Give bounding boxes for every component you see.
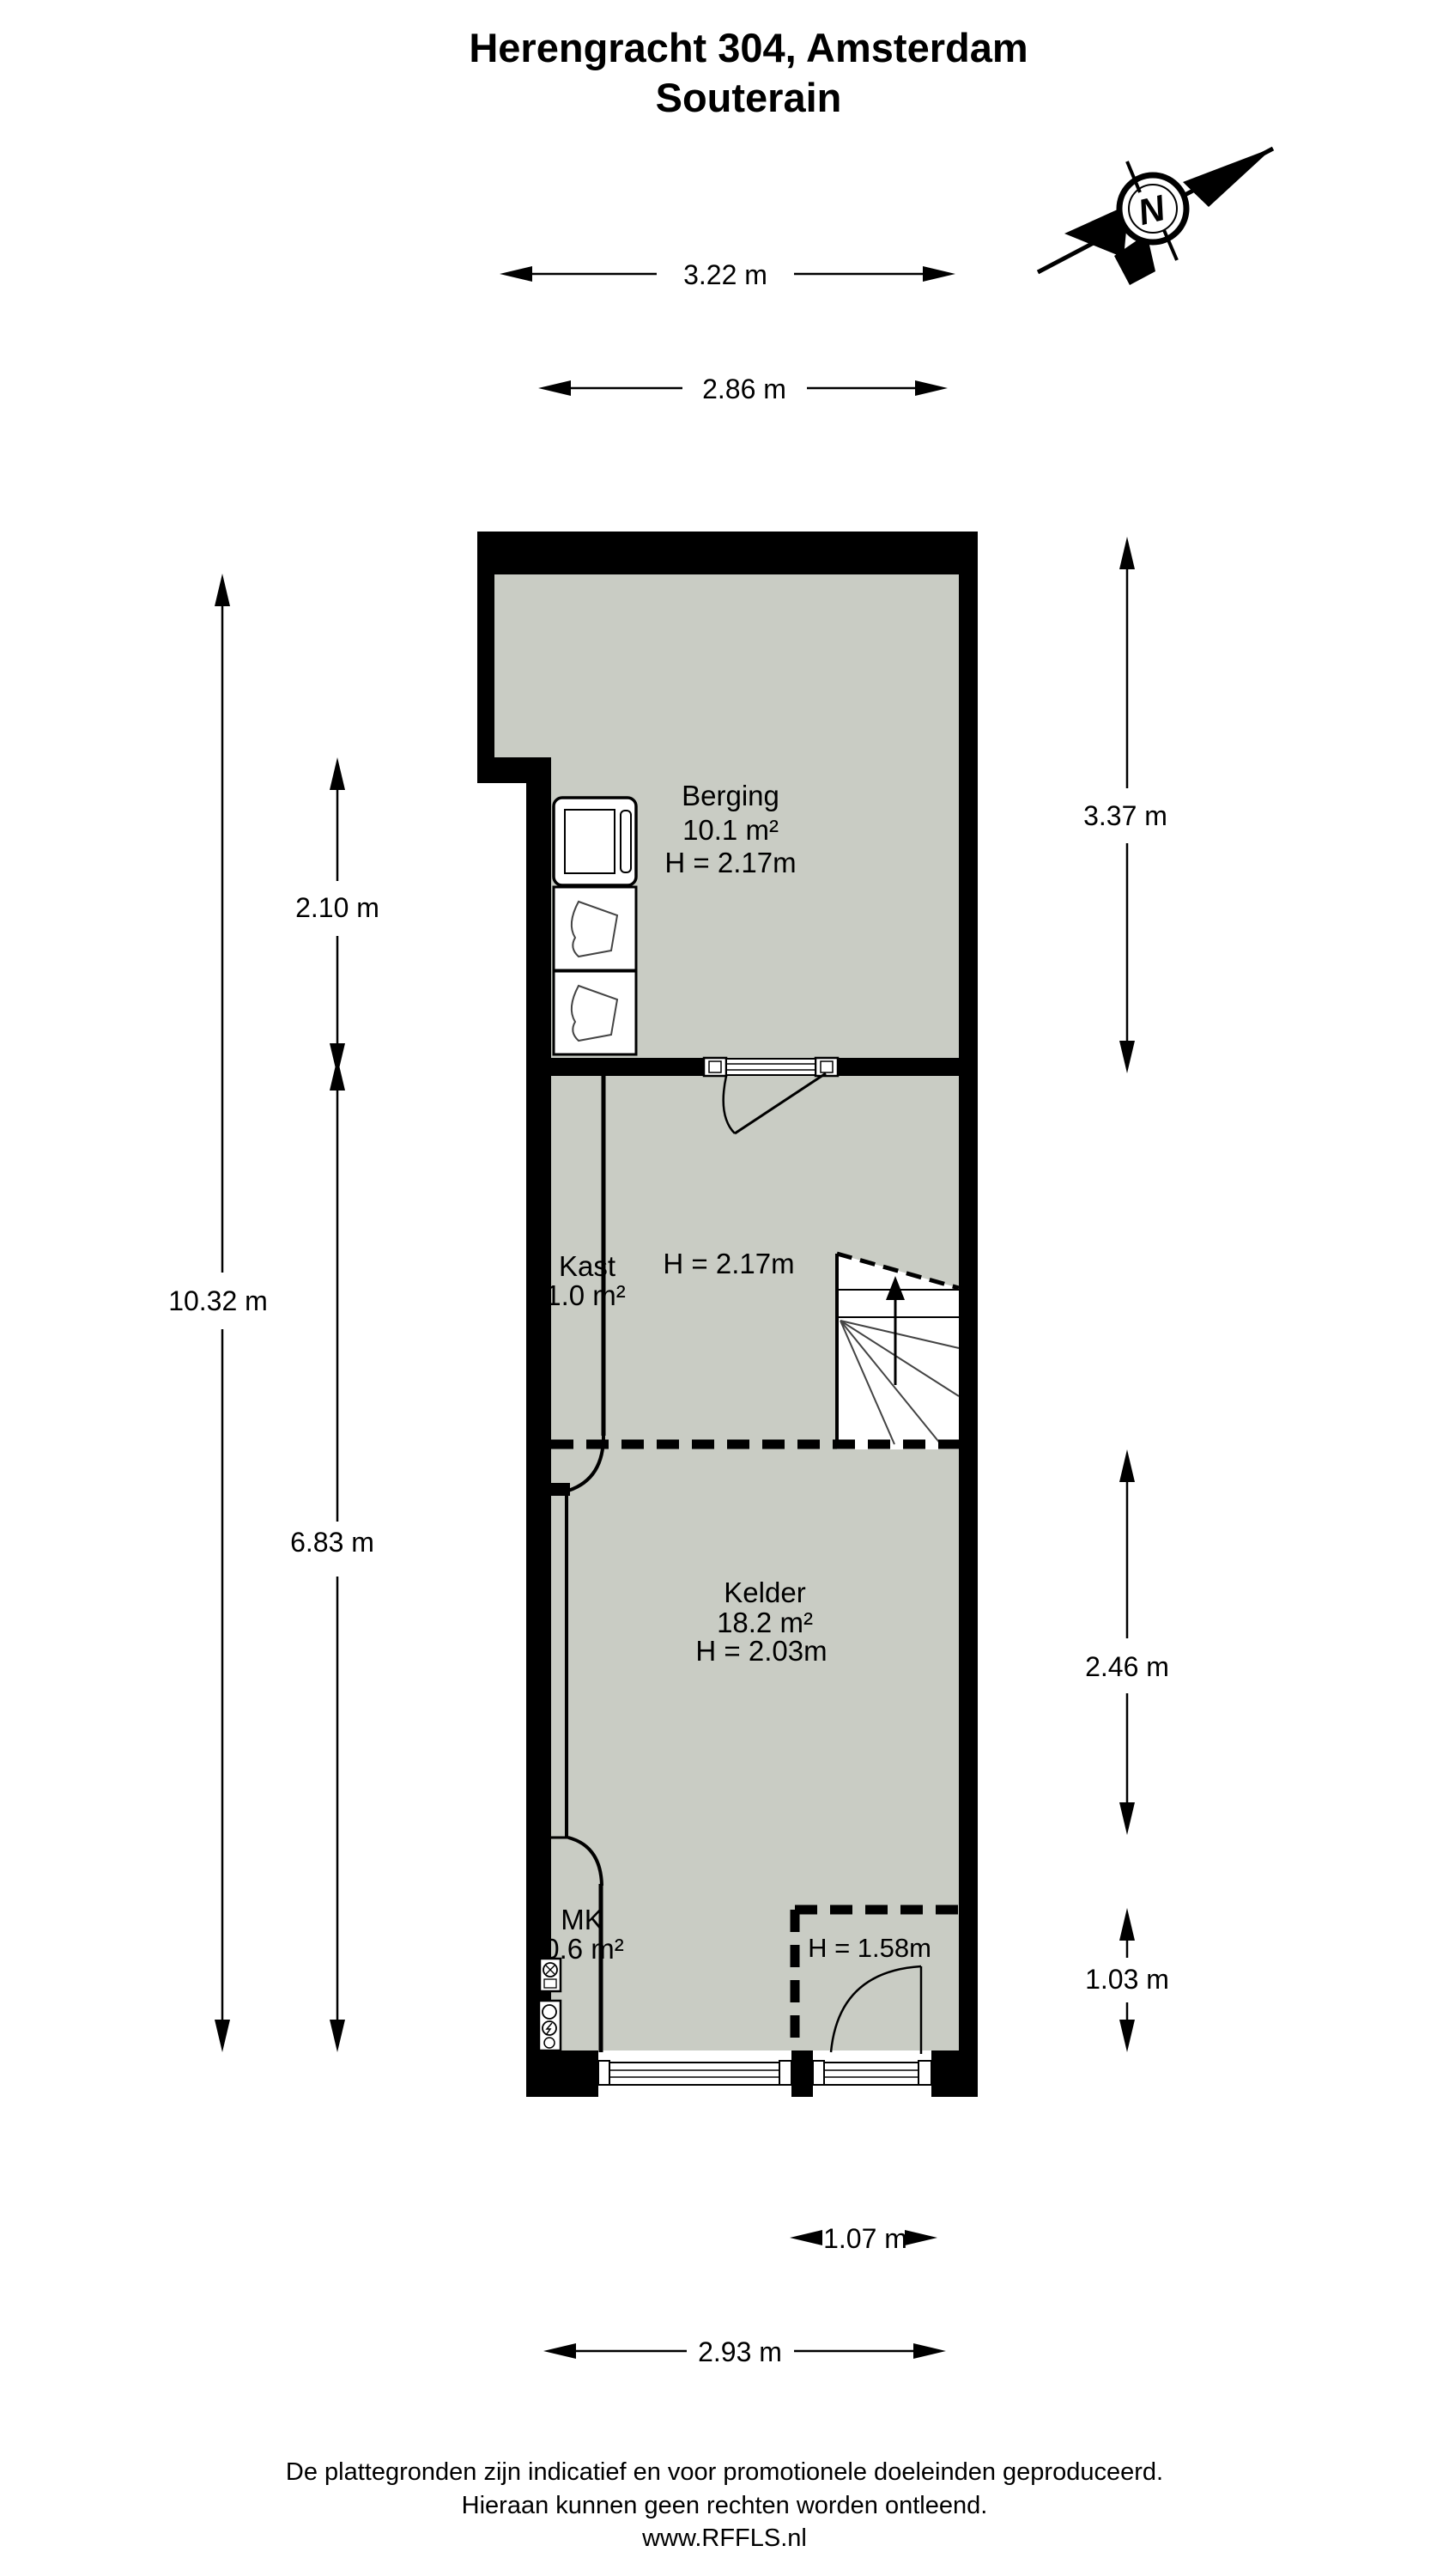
room-name: Kast — [559, 1250, 615, 1282]
dimension-label: 3.37 m — [1083, 800, 1167, 831]
room-height: H = 2.17m — [663, 1248, 794, 1279]
floorplan-drawing: Herengracht 304, Amsterdam Souterain N — [0, 0, 1449, 2576]
washing-machine-icon — [554, 798, 636, 885]
room-area: 18.2 m² — [717, 1607, 813, 1638]
dimension-label: 3.22 m — [683, 259, 767, 290]
room-label-berging: Berging 10.1 m² H = 2.17m — [664, 780, 796, 878]
dimension-label: 2.10 m — [295, 892, 379, 923]
dimension-label: 6.83 m — [290, 1527, 374, 1558]
window — [598, 2061, 791, 2085]
room-area: 10.1 m² — [682, 814, 779, 846]
dimension-left-full: 10.32 m — [168, 574, 268, 2052]
room-area: 0.6 m² — [543, 1933, 624, 1965]
footer-website-link: www.RFFLS.nl — [641, 2524, 807, 2552]
room-name: Kelder — [724, 1577, 805, 1608]
appliance-box-icon — [554, 887, 636, 970]
room-name: MK — [561, 1904, 603, 1935]
room-height: H = 2.03m — [695, 1635, 827, 1667]
dimension-label: 2.46 m — [1085, 1651, 1169, 1682]
dimension-bottom-door: 1.07 m — [790, 2223, 937, 2254]
dimension-label: 2.86 m — [702, 374, 786, 404]
floorplan-page: Herengracht 304, Amsterdam Souterain N — [0, 0, 1449, 2576]
dimension-label: 1.07 m — [823, 2223, 907, 2254]
electric-meter-icon — [539, 2001, 561, 2050]
dimension-right-lower: 1.03 m — [1085, 1908, 1169, 2052]
dimension-label: 2.93 m — [698, 2336, 782, 2367]
dimension-left-upper: 2.10 m — [295, 757, 379, 1076]
dimension-label: 1.03 m — [1085, 1964, 1169, 1995]
dimension-label: 10.32 m — [168, 1285, 268, 1316]
north-arrow-icon: N — [1038, 148, 1273, 285]
dimension-right-middle: 2.46 m — [1085, 1449, 1169, 1835]
staircase — [837, 1254, 959, 1449]
page-title-floor: Souterain — [656, 75, 842, 120]
dimension-bottom-width: 2.93 m — [543, 2336, 946, 2367]
room-name: Berging — [682, 780, 779, 811]
room-height: H = 2.17m — [664, 847, 796, 878]
appliance-box-icon — [554, 971, 636, 1054]
page-title-address: Herengracht 304, Amsterdam — [469, 25, 1028, 70]
low-headroom-label: H = 1.58m — [808, 1933, 931, 1963]
dimension-left-lower: 6.83 m — [290, 1058, 374, 2052]
footer-disclaimer-line1: De plattegronden zijn indicatief en voor… — [286, 2458, 1163, 2486]
dimension-top-outer: 3.22 m — [500, 259, 955, 290]
room-area: 1.0 m² — [545, 1279, 626, 1311]
dimension-top-inner: 2.86 m — [538, 374, 948, 404]
footer-disclaimer-line2: Hieraan kunnen geen rechten worden ontle… — [462, 2492, 988, 2519]
dimension-right-upper: 3.37 m — [1083, 537, 1167, 1073]
